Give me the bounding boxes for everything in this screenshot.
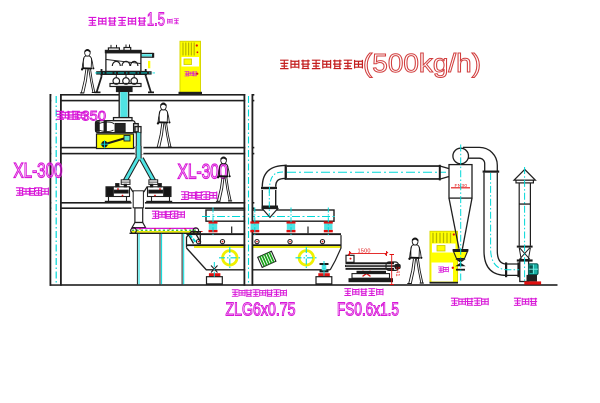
svg-text:1.5: 1.5: [147, 10, 165, 30]
svg-text:ZLG6x0.75: ZLG6x0.75: [226, 300, 296, 320]
svg-text:350: 350: [82, 107, 107, 123]
svg-text:1500: 1500: [358, 248, 371, 254]
svg-text:541: 541: [394, 267, 400, 277]
svg-text:XL-300: XL-300: [14, 160, 63, 183]
svg-text:(500kg/h): (500kg/h): [363, 48, 481, 78]
svg-text:XL-300: XL-300: [178, 161, 228, 184]
svg-text:FS0.6x1.5: FS0.6x1.5: [337, 300, 399, 320]
